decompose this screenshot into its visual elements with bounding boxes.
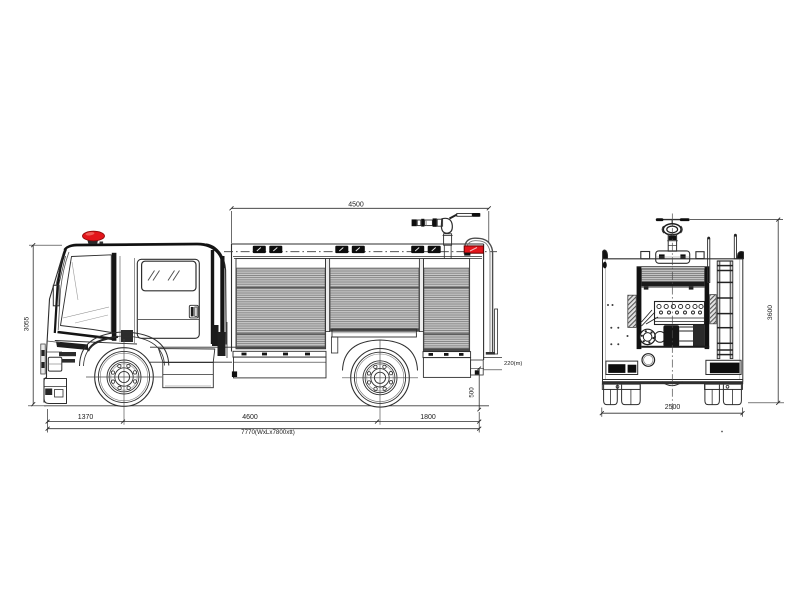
svg-text:1370: 1370 xyxy=(78,414,94,421)
svg-text:1800: 1800 xyxy=(420,414,436,421)
svg-text:4600: 4600 xyxy=(242,414,258,421)
svg-text:3055: 3055 xyxy=(24,316,31,331)
svg-text:220(m): 220(m) xyxy=(504,361,522,367)
svg-text:500: 500 xyxy=(468,387,475,398)
svg-text:2500: 2500 xyxy=(665,404,681,411)
svg-text:4500: 4500 xyxy=(348,201,364,208)
svg-text:3600: 3600 xyxy=(767,305,774,320)
svg-text:7770(WxLx7800xtt): 7770(WxLx7800xtt) xyxy=(241,429,295,436)
